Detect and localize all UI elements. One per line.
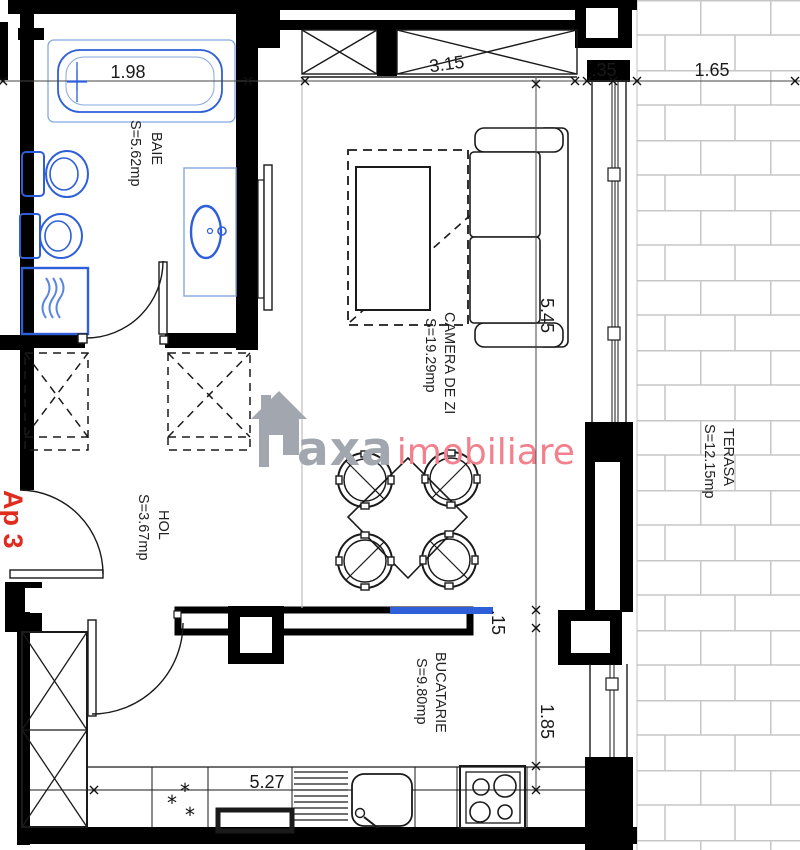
kitchen-cabinet-x <box>22 632 87 827</box>
washing-machine-waves <box>43 278 64 318</box>
terrace-area <box>637 0 800 850</box>
dim-bathtub: 1.98 <box>110 62 145 82</box>
chair-4 <box>420 531 478 589</box>
wall-corner-block-core <box>586 8 618 38</box>
floor-plan: 1.98 3.15 .35 1.65 5.27 5.45 1.85 .15 BA… <box>0 0 800 850</box>
counter-star-3: * <box>185 803 195 827</box>
toilet-bowl-inner <box>50 158 78 190</box>
apartment-label: Ap 3 <box>0 490 28 549</box>
label-terasa-area: S=12.15mp <box>701 424 717 499</box>
kitchen-glass-partition <box>390 607 493 614</box>
window-x-1 <box>302 30 377 74</box>
wall-left-corner-stub <box>0 22 8 80</box>
counter-star-2: * <box>167 791 177 815</box>
dim-plus-marker <box>67 71 87 91</box>
dim-kitchen-gap: .15 <box>488 610 508 635</box>
label-hol-area: S=3.67mp <box>135 494 151 561</box>
window-pier <box>377 28 397 76</box>
label-baie-area: S=5.62mp <box>127 120 143 187</box>
wall-strip-right-outer <box>620 427 633 612</box>
living-window-mullion-1 <box>608 168 620 181</box>
wardrobe-left-x <box>25 353 88 437</box>
dim-kitchen-width: 5.27 <box>249 772 284 792</box>
bathroom-door-leaf <box>159 262 167 334</box>
tv-screen <box>264 165 272 310</box>
living-window-glazing <box>612 82 618 422</box>
wall-bottom <box>17 827 637 844</box>
burner-4 <box>498 805 512 819</box>
burner-2 <box>494 775 516 797</box>
terrace-brick-floor <box>637 0 800 850</box>
chair-3 <box>336 532 394 590</box>
wardrobe-right <box>168 353 250 450</box>
dim-kitchen-depth: 1.85 <box>537 704 557 739</box>
wall-bath-bottom-right <box>165 333 252 348</box>
sink-drainboard <box>294 772 348 820</box>
dim-living-depth: 5.45 <box>537 298 557 333</box>
kitchen-door-arc <box>92 623 183 714</box>
wall-right-column-core <box>571 621 610 653</box>
counter-dividers <box>152 767 527 827</box>
dining-set <box>336 450 480 590</box>
sofa-armrest-top <box>475 128 563 152</box>
wall-top-living <box>278 20 580 30</box>
counter-star-1: * <box>180 779 190 803</box>
wall-strip-right-inner <box>585 462 595 612</box>
wall-bathroom-stub <box>18 28 44 40</box>
tv-bracket <box>258 180 264 298</box>
window-x-2 <box>397 30 577 74</box>
chair-2 <box>422 450 480 508</box>
kitchen-window-mullion <box>606 678 618 690</box>
wall-entry-notch <box>25 588 42 613</box>
label-baie: BAIE <box>148 132 164 165</box>
stove-outer <box>460 766 525 828</box>
kitchen-sink-bowl <box>352 774 412 826</box>
wall-right-bottom <box>585 757 633 850</box>
wall-top-bathroom <box>8 0 240 14</box>
bathroom-fixtures <box>20 40 236 334</box>
wall-bath-bottom-left <box>20 333 85 348</box>
kitchen-door-jamb <box>174 611 181 618</box>
wardrobes <box>25 353 250 450</box>
dim-living-window: 3.15 <box>428 52 465 77</box>
wardrobe-right-x <box>168 353 250 437</box>
doors-layer <box>10 261 183 716</box>
living-window-mullion-2 <box>608 327 620 340</box>
wall-kitchen-column-core <box>240 617 272 653</box>
kitchen-door-leaf <box>88 620 96 716</box>
wall-left-hall <box>20 348 34 490</box>
wall-left-bump <box>0 335 20 350</box>
bathroom-door-arc <box>86 261 163 338</box>
label-terasa: TERASA <box>720 428 736 486</box>
entry-door-arc <box>20 490 103 574</box>
label-bucatarie-area: S=9.80mp <box>413 658 429 725</box>
label-camera-de-zi: CAMERA DE ZI <box>441 312 457 414</box>
label-camera-de-zi-area: S=19.29mp <box>422 318 438 393</box>
sofa-cushion-1 <box>470 152 540 237</box>
dim-wall: .35 <box>591 60 616 80</box>
dim-terrace: 1.65 <box>694 60 729 80</box>
bathroom-door-jamb-left <box>78 334 87 343</box>
floor-plan-svg: 1.98 3.15 .35 1.65 5.27 5.45 1.85 .15 BA… <box>0 0 800 850</box>
living-furniture <box>258 78 568 608</box>
sofa-cushion-2 <box>470 237 540 323</box>
label-hol: HOL <box>155 510 171 540</box>
kitchen-fixtures <box>22 632 585 831</box>
label-bucatarie: BUCATARIE <box>432 652 448 733</box>
burner-1 <box>473 779 489 795</box>
wardrobe-left <box>25 353 88 450</box>
wall-bath-living <box>236 13 258 350</box>
chair-1 <box>336 451 394 509</box>
coffee-table <box>356 167 430 310</box>
bidet-bowl-inner <box>45 221 71 251</box>
burner-3 <box>470 802 490 822</box>
bathroom-door-jamb-right <box>160 336 168 344</box>
entry-door-leaf <box>10 570 103 578</box>
